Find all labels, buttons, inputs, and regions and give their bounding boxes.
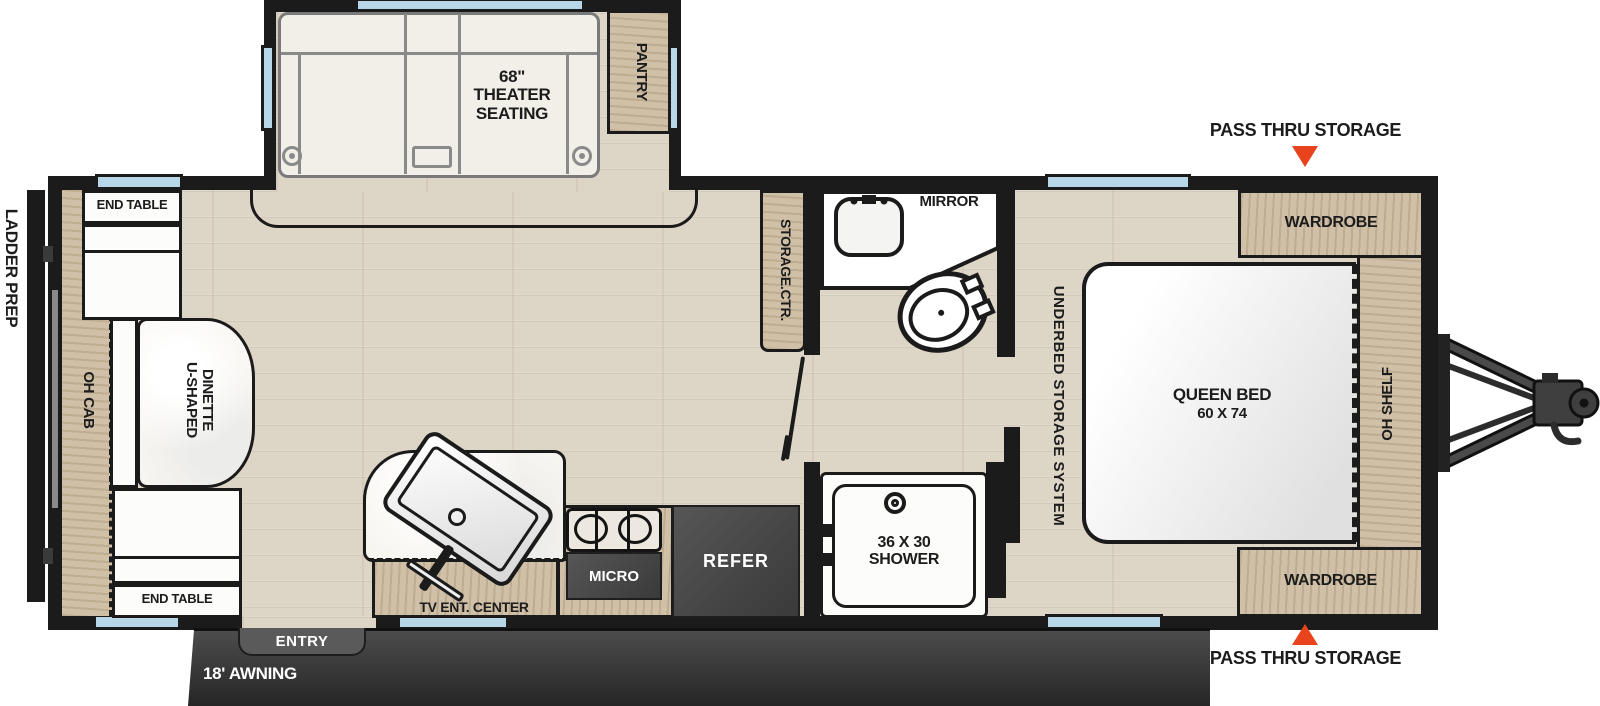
queen-bed-word: QUEEN BED <box>1173 385 1271 404</box>
microwave: MICRO <box>566 552 662 600</box>
theater-size: 68" <box>499 67 525 86</box>
bumper-bracket-top <box>43 246 53 262</box>
pass-thru-bottom-label: PASS THRU STORAGE <box>1208 649 1403 668</box>
bottom-wall-right <box>376 616 1438 630</box>
shower-hinge-bottom <box>818 553 834 566</box>
slideout-top-window <box>355 0 585 12</box>
hitch-crossbar <box>1438 334 1450 472</box>
oh-shelf-label: OH SHELF <box>1380 344 1400 464</box>
underbed-storage-label: UNDERBED STORAGE SYSTEM <box>1046 271 1066 541</box>
rear-window <box>52 290 58 508</box>
trailer-hitch <box>1438 328 1600 478</box>
dinette-word-right: DINETTE <box>199 369 216 431</box>
coupler-latch-top <box>1542 373 1558 383</box>
ladder-prep-label: LADDER PREP <box>0 188 20 348</box>
shower-hinge-top <box>818 524 834 537</box>
refer-label: REFER <box>703 551 769 572</box>
stove-burner-left <box>574 514 608 544</box>
bathroom-fixtures <box>820 190 1002 365</box>
theater-word1: THEATER <box>474 85 551 104</box>
shower-label: 36 X 30 SHOWER <box>844 534 964 569</box>
pass-thru-top-arrow-icon <box>1292 146 1318 167</box>
sofa-backrest-line <box>281 52 597 55</box>
mirror-label: MIRROR <box>906 194 992 210</box>
wardrobe-bottom-label: WARDROBE <box>1237 572 1424 589</box>
micro-label: MICRO <box>589 568 639 585</box>
bottom-window-bedroom <box>1045 614 1163 630</box>
queen-bed-size: 60 X 74 <box>1197 405 1247 422</box>
theater-word2: SEATING <box>476 104 548 123</box>
console-cupholder <box>412 146 452 168</box>
dinette-bench-bottom <box>112 488 242 584</box>
bench-top-seam <box>85 250 179 253</box>
awning-label: 18' AWNING <box>203 665 363 683</box>
shower-word: SHOWER <box>869 551 939 568</box>
coupler-safety-hook <box>1554 425 1578 442</box>
cupholder-right-dot <box>579 153 585 159</box>
entry-tab: ENTRY <box>238 628 366 656</box>
pass-thru-top-label: PASS THRU STORAGE <box>1208 121 1403 140</box>
stove-burner-right <box>618 514 652 544</box>
entry-label: ENTRY <box>276 633 329 650</box>
dinette-bench-top <box>82 224 182 320</box>
faucet-knob-right <box>881 198 888 205</box>
bench-bottom-seam <box>115 556 239 559</box>
front-wall <box>1424 176 1438 630</box>
stove-grate-1 <box>595 510 598 550</box>
top-window-rear <box>95 174 183 190</box>
wardrobe-top-label: WARDROBE <box>1238 214 1424 231</box>
cupholder-left-dot <box>289 153 295 159</box>
tv-ent-center-label: TV ENT. CENTER <box>390 600 558 615</box>
bedroom-partition <box>1004 427 1020 543</box>
dinette-label: DINETTE U-SHAPED <box>179 325 215 475</box>
shower-size: 36 X 30 <box>877 534 930 551</box>
hitch-ball-center <box>1580 399 1589 408</box>
bumper-bracket-bottom <box>43 548 53 564</box>
storage-ctr-label: STORAGE.CTR. <box>773 195 793 345</box>
stove-grate-2 <box>627 510 630 550</box>
pantry-label: PANTRY <box>629 27 649 117</box>
pass-thru-bottom-arrow-icon <box>1292 624 1318 645</box>
bath-sink-icon <box>836 199 902 255</box>
rv-floorplan: LADDER PREP 68" THEATER SEATING PANTRY O… <box>0 0 1600 706</box>
theater-seating-label: 68" THEATER SEATING <box>452 68 572 123</box>
shower-wall-left <box>804 462 820 616</box>
top-window-bedroom <box>1045 174 1191 190</box>
refrigerator: REFER <box>672 505 800 618</box>
dinette-bench-side <box>110 318 138 488</box>
bath-wall-left <box>804 190 820 355</box>
end-table-bottom-label: END TABLE <box>112 592 242 606</box>
sofa-console-line-left <box>404 14 407 174</box>
shower-wall-right <box>986 462 1006 598</box>
faucet-icon <box>862 195 876 204</box>
shower-drain-inner <box>891 499 899 507</box>
dinette-word-left: U-SHAPED <box>183 362 200 438</box>
queen-bed-label: QUEEN BED 60 X 74 <box>1148 386 1296 423</box>
slideout-step-outline <box>250 180 698 228</box>
slideout-left-window <box>261 45 275 131</box>
faucet-knob-left <box>851 198 858 205</box>
end-table-top-label: END TABLE <box>82 198 182 212</box>
oh-cab-label: OH CAB <box>76 340 96 460</box>
tv-mount-circle <box>448 508 466 526</box>
